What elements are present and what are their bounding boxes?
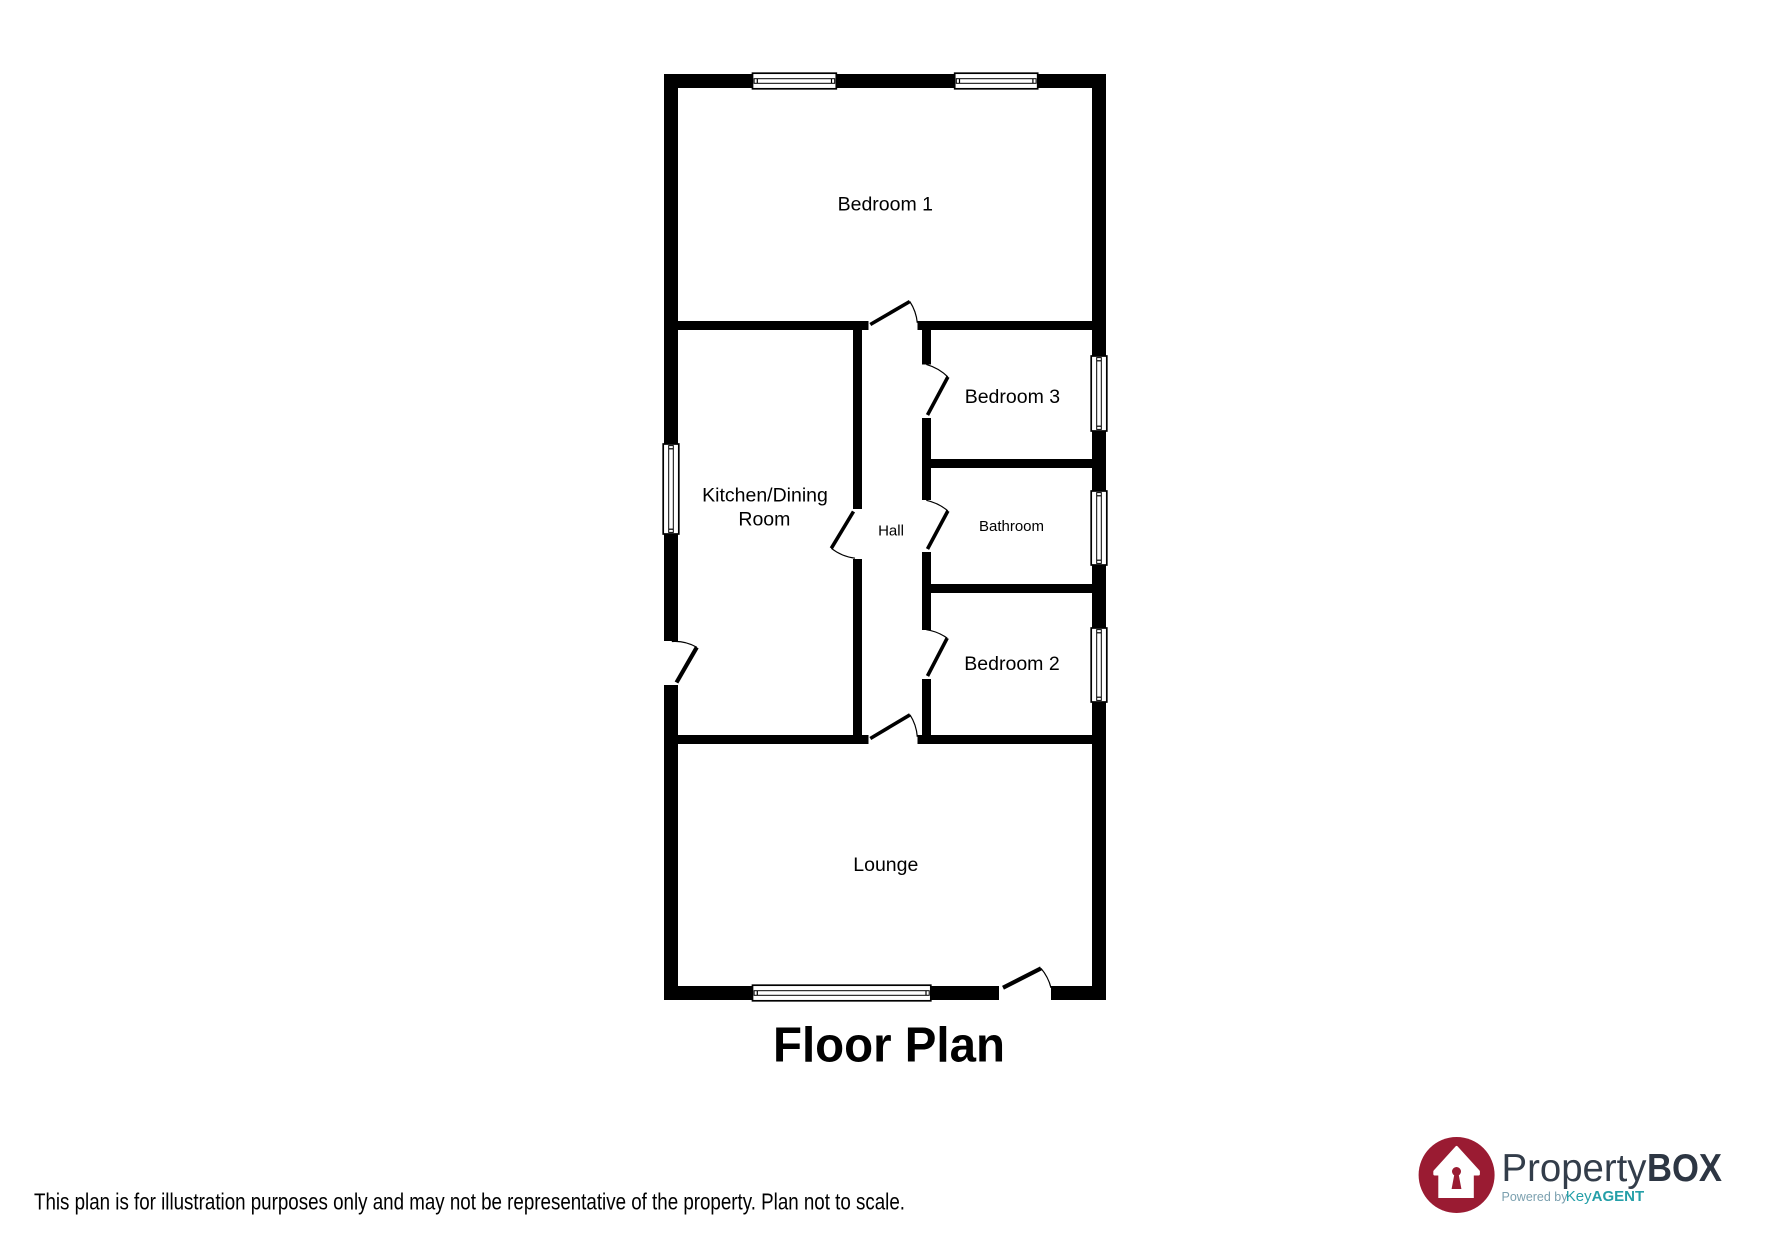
svg-text:Bedroom 1: Bedroom 1 <box>838 194 933 216</box>
svg-text:Lounge: Lounge <box>853 854 918 876</box>
svg-text:Bedroom 3: Bedroom 3 <box>965 386 1060 408</box>
svg-text:Property: Property <box>1502 1147 1647 1190</box>
svg-text:Kitchen/Dining: Kitchen/Dining <box>702 485 828 507</box>
svg-text:KeyAGENT: KeyAGENT <box>1566 1188 1644 1205</box>
svg-text:This plan is for illustration: This plan is for illustration purposes o… <box>34 1189 905 1215</box>
svg-text:Bathroom: Bathroom <box>979 518 1044 535</box>
svg-text:Floor Plan: Floor Plan <box>773 1019 1005 1073</box>
svg-text:Bedroom 2: Bedroom 2 <box>964 653 1059 675</box>
svg-text:BOX: BOX <box>1647 1147 1722 1190</box>
svg-text:Room: Room <box>738 508 790 530</box>
svg-text:Powered by: Powered by <box>1502 1190 1569 1204</box>
svg-text:Hall: Hall <box>878 523 904 540</box>
